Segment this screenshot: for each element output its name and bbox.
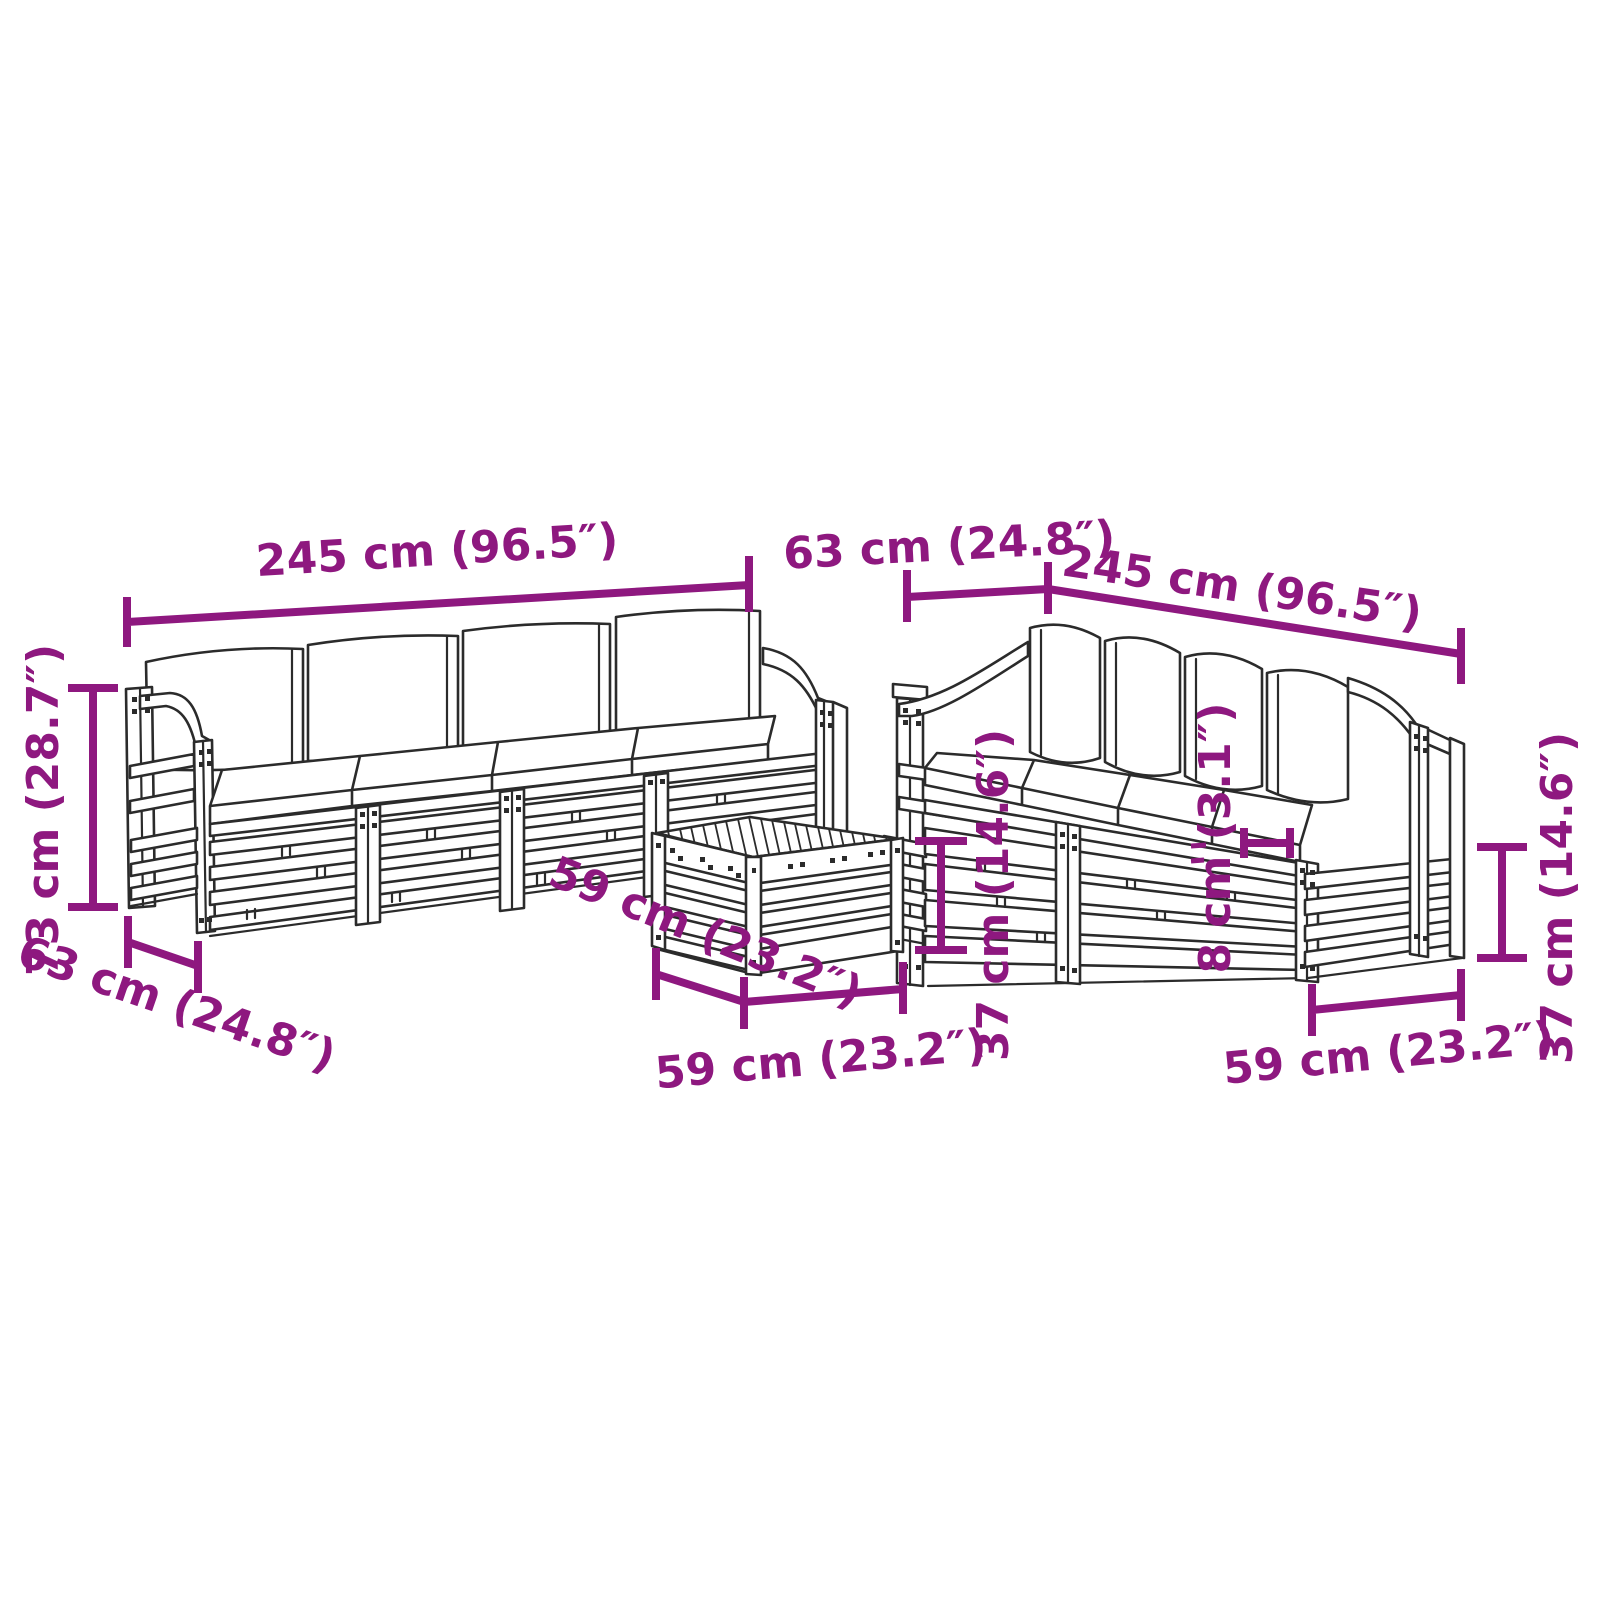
dim-sofa-depth-label: 63 cm (24.8″) (11, 926, 342, 1082)
dim-table-height-label: 37 cm (14.6″) (968, 729, 1019, 1061)
dim-sofa-depth: 63 cm (24.8″) (11, 916, 342, 1082)
sofa-right-side-panel (1305, 858, 1462, 978)
dim-module-width-label: 59 cm (23.2″) (1221, 1012, 1557, 1095)
dim-sofa-right-width-label: 245 cm (96.5″) (1059, 536, 1425, 640)
dim-cushion-thickness-label: 8 cm (3.1″) (1190, 702, 1241, 973)
dim-module-width: 59 cm (23.2″) (1221, 969, 1557, 1095)
dim-sofa-left-width-label: 245 cm (96.5″) (254, 514, 619, 587)
dim-table-width-label: 59 cm (23.2″) (653, 1020, 988, 1100)
dim-sofa-height: 73 cm (28.7″) (18, 644, 118, 976)
dim-sofa-height-label: 73 cm (28.7″) (18, 644, 69, 976)
product-dimension-diagram: 245 cm (96.5″) 63 cm (24.8″) 245 cm (96.… (0, 0, 1600, 1600)
diagram-canvas: 245 cm (96.5″) 63 cm (24.8″) 245 cm (96.… (0, 0, 1600, 1600)
